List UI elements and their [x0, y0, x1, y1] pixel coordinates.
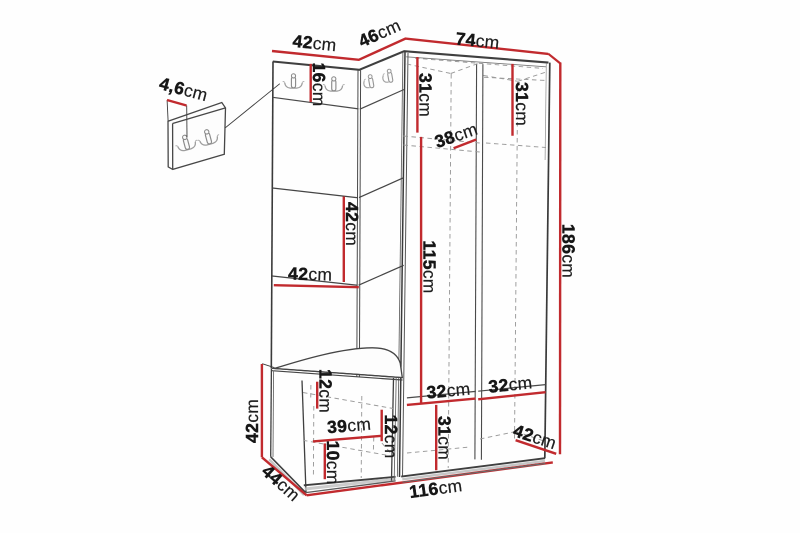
svg-text:31cm: 31cm — [434, 416, 454, 460]
svg-text:115cm: 115cm — [419, 240, 439, 293]
svg-text:42cm: 42cm — [342, 202, 362, 246]
svg-text:10cm: 10cm — [323, 441, 343, 485]
svg-text:31cm: 31cm — [512, 82, 532, 126]
svg-text:31cm: 31cm — [416, 73, 436, 117]
svg-text:16cm: 16cm — [309, 63, 329, 107]
svg-text:32cm: 32cm — [426, 379, 472, 403]
svg-text:12cm: 12cm — [316, 369, 336, 413]
svg-text:39cm: 39cm — [326, 414, 371, 437]
svg-text:12cm: 12cm — [381, 415, 401, 459]
svg-text:186cm: 186cm — [558, 224, 578, 278]
svg-text:42cm: 42cm — [288, 263, 333, 284]
svg-text:42cm: 42cm — [242, 399, 262, 443]
